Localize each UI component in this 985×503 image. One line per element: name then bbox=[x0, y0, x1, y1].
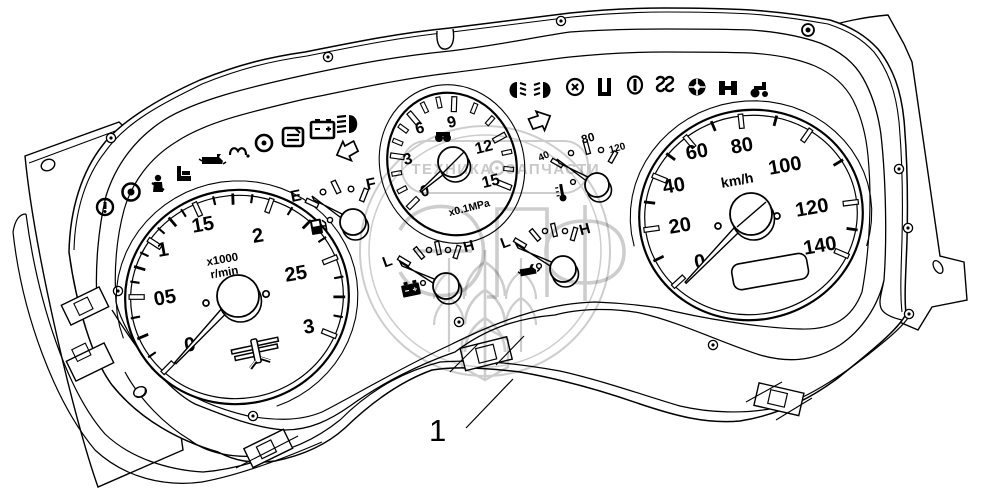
svg-text:80: 80 bbox=[729, 133, 755, 159]
svg-text:25: 25 bbox=[283, 261, 309, 287]
svg-text:20: 20 bbox=[667, 213, 693, 239]
svg-text:15: 15 bbox=[190, 212, 216, 238]
svg-text:60: 60 bbox=[684, 139, 710, 165]
svg-text:05: 05 bbox=[152, 285, 178, 311]
svg-text:ТЕХНИКА: ТЕХНИКА bbox=[411, 161, 492, 178]
svg-text:1: 1 bbox=[429, 413, 446, 448]
svg-text:40: 40 bbox=[661, 173, 687, 199]
svg-text:ЗАПЧАСТИ: ЗАПЧАСТИ bbox=[506, 161, 600, 178]
